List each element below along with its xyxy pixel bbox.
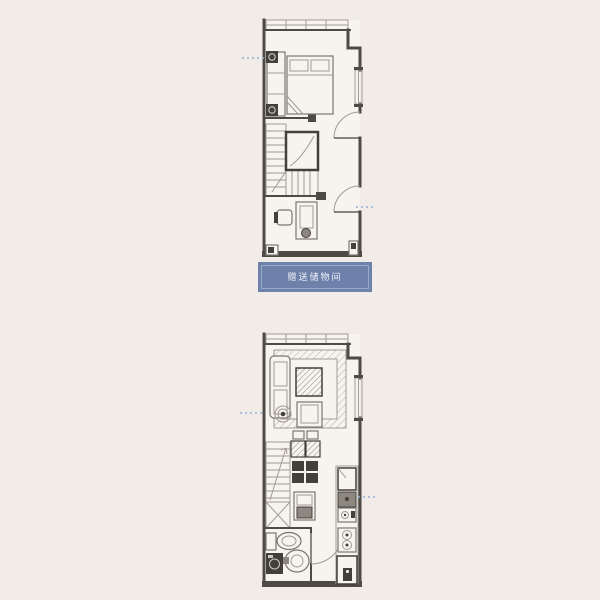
wardrobe	[266, 51, 285, 116]
corner-fixture-right	[349, 241, 358, 255]
stove	[338, 528, 356, 552]
faucet-unit	[338, 508, 356, 522]
hall-cabinet	[294, 492, 315, 520]
right-window-upper	[354, 67, 363, 107]
kitchen-sink	[338, 492, 356, 507]
fridge	[337, 556, 357, 584]
right-window-lower	[354, 375, 363, 421]
desk	[296, 202, 317, 239]
storage-banner: 赠送储物间	[258, 262, 372, 292]
knob-fixture-top	[266, 51, 278, 63]
corner-fixture-left	[266, 245, 278, 255]
knob-fixture-bottom	[266, 104, 278, 116]
banner-label: 赠送储物间	[287, 273, 342, 282]
lower-floor-plan	[240, 334, 378, 587]
stair-void	[286, 132, 318, 170]
washing-machine	[266, 553, 283, 574]
floor-plans-drawing	[0, 0, 600, 600]
floor-plan-canvas: 赠送储物间	[0, 0, 600, 600]
sofa	[270, 356, 290, 418]
upper-cabinet	[338, 468, 356, 490]
double-bed	[287, 56, 333, 114]
desk-chair	[274, 210, 292, 225]
upper-floor-plan	[242, 20, 374, 257]
toilet	[266, 533, 301, 551]
armchair	[297, 402, 322, 427]
coffee-table	[296, 368, 322, 396]
